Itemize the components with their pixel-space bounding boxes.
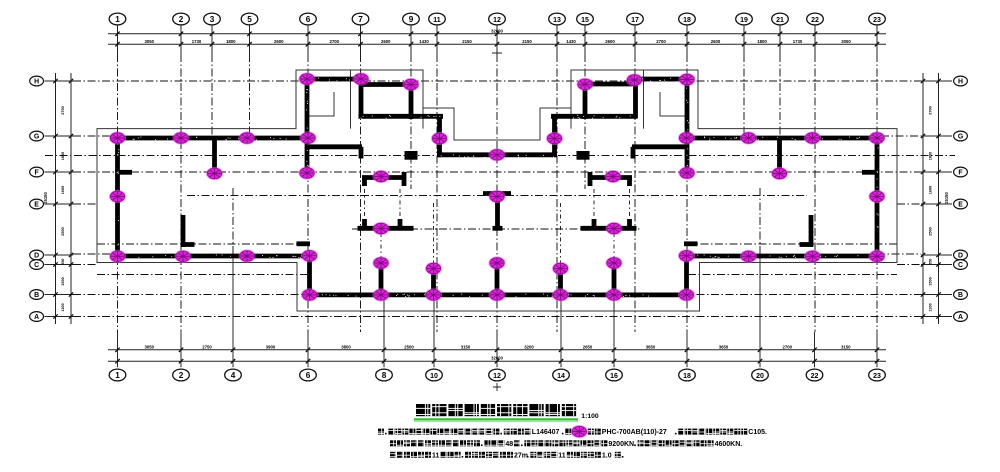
svg-text:B: B [958,292,963,299]
svg-text:1500: 1500 [61,277,65,285]
svg-text:3150: 3150 [461,345,471,350]
svg-text:1100: 1100 [929,303,933,311]
svg-text:11: 11 [433,17,441,24]
svg-text:1100: 1100 [61,303,65,311]
svg-text:1600: 1600 [61,186,65,194]
svg-text:2700: 2700 [929,106,933,114]
svg-text:2600: 2600 [381,39,391,44]
svg-text:9: 9 [409,15,414,24]
svg-text:L146407: L146407 [532,429,560,436]
svg-text:D: D [958,252,963,259]
svg-text:F: F [34,169,38,176]
svg-text:22: 22 [811,17,819,24]
svg-text:2600: 2600 [605,39,615,44]
svg-text:15150: 15150 [944,192,949,204]
svg-text:21: 21 [776,17,784,24]
svg-text:4600KN.: 4600KN. [715,441,743,448]
svg-text:13: 13 [553,17,561,24]
svg-text:23: 23 [873,373,881,380]
svg-text:E: E [34,201,39,208]
svg-text:23: 23 [873,17,881,24]
svg-text:2500: 2500 [929,227,933,235]
svg-text:16: 16 [610,373,618,380]
svg-text:3650: 3650 [646,345,656,350]
svg-text:18: 18 [683,373,691,380]
svg-text:D: D [34,252,39,259]
svg-text:2150: 2150 [462,39,472,44]
svg-text:48: 48 [505,441,513,448]
svg-text:2650: 2650 [583,345,593,350]
svg-text:H: H [958,78,963,85]
svg-text:G: G [34,133,39,140]
svg-text:7: 7 [358,15,363,24]
svg-text:6: 6 [306,371,311,380]
svg-text:32600: 32600 [491,355,503,360]
svg-text:C: C [34,262,39,269]
svg-text:12: 12 [493,373,501,380]
svg-text:1730: 1730 [793,39,803,44]
svg-text:4: 4 [231,371,236,380]
svg-text:2500: 2500 [61,227,65,235]
svg-text:9200KN: 9200KN [608,441,634,448]
svg-text:3050: 3050 [144,345,154,350]
svg-text:20: 20 [756,373,764,380]
svg-text:3050: 3050 [841,39,851,44]
svg-text:15: 15 [581,17,589,24]
svg-text:12: 12 [493,17,501,24]
svg-text:B: B [34,292,39,299]
svg-text:2700: 2700 [329,39,339,44]
svg-text:27m: 27m [514,452,528,459]
svg-text:1800: 1800 [61,152,65,160]
svg-text:3050: 3050 [144,39,154,44]
svg-text:32600: 32600 [491,29,503,34]
svg-text:PHC-700AB(110)-27: PHC-700AB(110)-27 [602,429,667,436]
svg-text:550: 550 [929,259,933,265]
svg-text:2: 2 [179,371,184,380]
svg-text:2700: 2700 [656,39,666,44]
svg-text:2500: 2500 [404,345,414,350]
svg-text:1800: 1800 [226,39,236,44]
svg-text:1:100: 1:100 [581,413,599,420]
svg-text:11: 11 [558,452,566,459]
svg-text:3900: 3900 [266,345,276,350]
svg-text:2700: 2700 [61,106,65,114]
svg-text:2750: 2750 [202,345,212,350]
svg-text:2: 2 [179,15,184,24]
svg-text:11: 11 [432,452,440,459]
svg-text:18: 18 [683,17,691,24]
svg-text:1600: 1600 [929,186,933,194]
svg-text:3150: 3150 [841,345,851,350]
svg-text:8: 8 [382,371,387,380]
svg-text:2600: 2600 [274,39,284,44]
svg-text:3200: 3200 [524,345,534,350]
svg-text:C: C [958,262,963,269]
svg-text:1500: 1500 [929,277,933,285]
svg-text:1800: 1800 [757,39,767,44]
svg-text:15150: 15150 [43,192,48,204]
svg-text:10: 10 [430,373,438,380]
svg-text:1.0: 1.0 [602,452,612,459]
svg-text:E: E [958,201,963,208]
svg-text:2600: 2600 [711,39,721,44]
svg-text:H: H [34,78,39,85]
svg-text:1: 1 [115,371,120,380]
svg-text:550: 550 [61,259,65,265]
svg-text:3: 3 [210,15,215,24]
svg-text:6: 6 [306,15,311,24]
svg-text:14: 14 [557,373,565,380]
svg-text:1800: 1800 [929,152,933,160]
svg-text:2700: 2700 [782,345,792,350]
svg-text:22: 22 [811,373,819,380]
svg-text:1430: 1430 [566,39,576,44]
svg-text:1430: 1430 [419,39,429,44]
svg-text:19: 19 [740,17,748,24]
svg-text:1730: 1730 [192,39,202,44]
svg-text:G: G [958,133,963,140]
svg-text:A: A [34,314,39,321]
svg-text:F: F [958,169,962,176]
svg-text:5: 5 [247,15,252,24]
svg-text:3650: 3650 [719,345,729,350]
svg-text:C105.: C105. [748,429,767,436]
svg-text:1: 1 [115,15,120,24]
svg-text:A: A [958,314,963,321]
svg-text:17: 17 [631,17,639,24]
svg-text:3800: 3800 [341,345,351,350]
svg-text:2150: 2150 [522,39,532,44]
